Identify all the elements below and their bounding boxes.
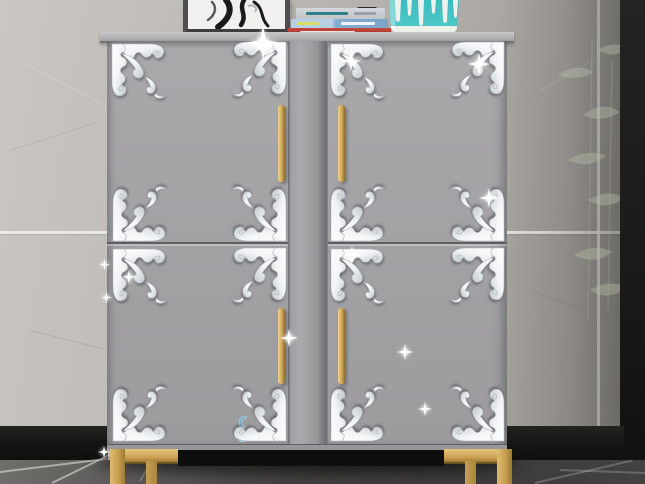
sparkle-glint <box>343 246 361 264</box>
sparkle-glint <box>122 270 136 284</box>
sparkle-glint <box>397 344 413 360</box>
sparkle-layer <box>0 0 645 484</box>
sparkle-glint <box>99 259 110 270</box>
sparkle-glint <box>101 292 112 303</box>
sparkle-glint <box>246 26 280 60</box>
sparkle-glint <box>98 446 110 458</box>
sparkle-glint <box>341 51 361 71</box>
scene-product-photo <box>0 0 645 484</box>
sparkle-glint <box>479 188 499 208</box>
sparkle-glint <box>468 53 490 75</box>
sparkle-glint <box>418 402 432 416</box>
sparkle-glint <box>280 329 298 347</box>
